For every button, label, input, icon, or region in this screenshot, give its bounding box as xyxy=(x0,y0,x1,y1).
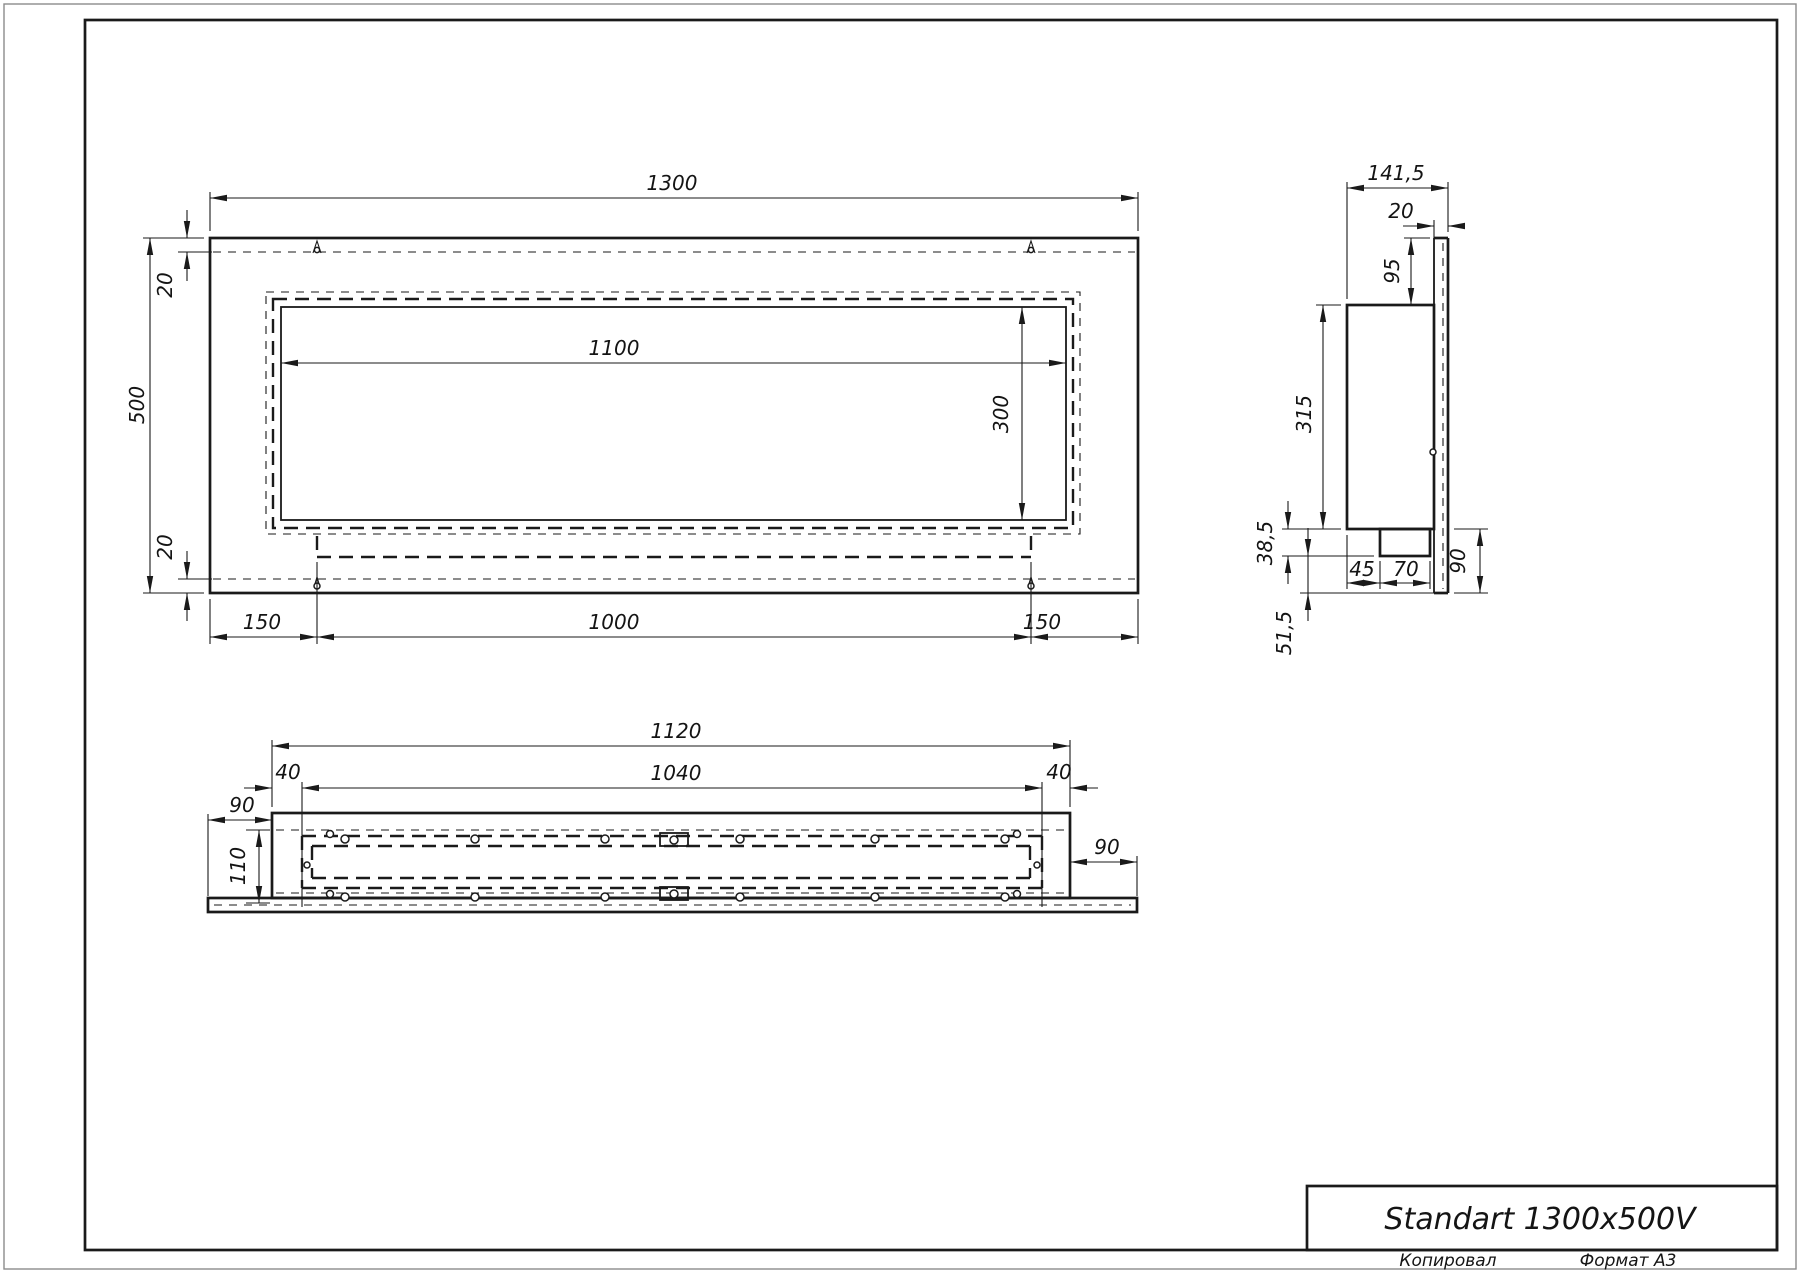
side-hole xyxy=(1430,449,1436,455)
bottom-view: 1120 1040 40 40 90 90 110 xyxy=(208,719,1137,912)
dim-front-inset-top: 20 xyxy=(153,272,177,297)
opening-hidden-2 xyxy=(266,292,1080,534)
drawing-sheet: Standart 1300x500V Копировал Формат A3 xyxy=(0,0,1800,1273)
dim-opening-top-offset: 95 xyxy=(1380,258,1404,283)
dim-inset-left: 40 xyxy=(275,760,300,784)
dim-tray-offset: 45 xyxy=(1349,557,1374,581)
dim-flange-right: 90 xyxy=(1094,835,1119,859)
side-body xyxy=(1347,305,1434,529)
dim-tray-width: 1000 xyxy=(589,610,640,634)
dim-inset-right: 40 xyxy=(1046,760,1071,784)
copied-label: Копировал xyxy=(1399,1251,1496,1271)
front-opening xyxy=(266,292,1080,534)
front-tray-hidden xyxy=(317,536,1031,557)
dim-opening-height: 300 xyxy=(989,395,1013,433)
dim-bottom-clearance: 51,5 xyxy=(1272,611,1296,656)
dim-margin-right: 150 xyxy=(1023,610,1061,634)
dim-front-height: 500 xyxy=(125,386,149,424)
side-outline xyxy=(1347,238,1448,593)
inner-frame xyxy=(85,20,1777,1250)
front-view: 1300 500 20 20 1100 300 xyxy=(125,171,1138,644)
front-dimensions: 1300 500 20 20 1100 300 xyxy=(125,171,1138,644)
keyhole-top-right xyxy=(1028,247,1033,252)
dim-body-height: 315 xyxy=(1292,395,1316,433)
format-label: Формат A3 xyxy=(1580,1251,1677,1271)
dim-tray-drop: 38,5 xyxy=(1253,521,1277,566)
drawing-title: Standart 1300x500V xyxy=(1384,1202,1698,1237)
dim-front-width: 1300 xyxy=(647,171,698,195)
keyhole-top-left xyxy=(314,247,319,252)
bottom-body xyxy=(272,813,1070,898)
dim-bottom-depth: 110 xyxy=(226,847,250,885)
opening-outline xyxy=(281,307,1066,520)
dim-facade-depth: 20 xyxy=(1388,199,1413,223)
dim-lower-height: 90 xyxy=(1446,548,1470,573)
side-dimensions: 141,5 20 95 315 38,5 51,5 xyxy=(1253,161,1488,655)
technical-drawing: Standart 1300x500V Копировал Формат A3 xyxy=(0,0,1800,1273)
side-view: 141,5 20 95 315 38,5 51,5 xyxy=(1253,161,1488,655)
dim-opening-width: 1100 xyxy=(589,336,640,360)
opening-hidden-1 xyxy=(273,299,1073,528)
side-tray xyxy=(1380,529,1430,556)
dim-front-inset-bottom: 20 xyxy=(153,534,177,559)
dim-margin-left: 150 xyxy=(243,610,281,634)
dim-flange-left: 90 xyxy=(229,793,254,817)
dim-inner-width: 1040 xyxy=(651,761,702,785)
dim-tray-depth: 70 xyxy=(1393,557,1418,581)
front-keyholes xyxy=(313,241,1035,589)
bottom-screw-holes xyxy=(304,831,1040,902)
dim-side-depth: 141,5 xyxy=(1367,161,1424,185)
dim-body-width: 1120 xyxy=(651,719,702,743)
